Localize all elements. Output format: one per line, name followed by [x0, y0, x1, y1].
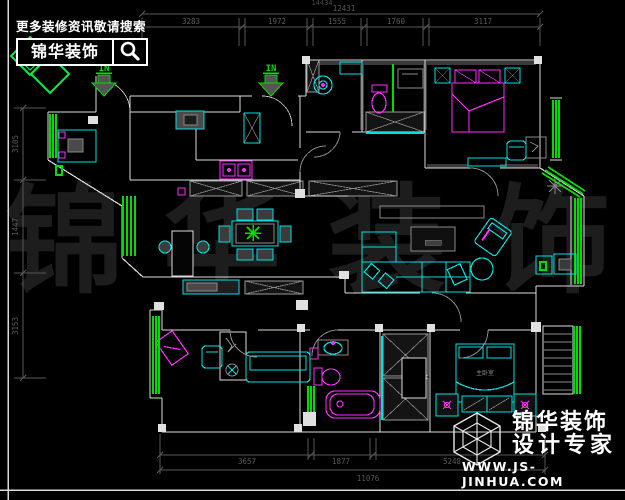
pillar: [375, 324, 383, 332]
corner-seat: [447, 264, 467, 285]
dim-label: 3283: [182, 17, 200, 26]
room-label: 主卧室: [476, 369, 494, 377]
shape-r: [59, 132, 65, 138]
shape-r: [68, 139, 83, 152]
brand-tagline: 更多装修资讯敬请搜索: [16, 16, 148, 35]
master-balcony: [543, 326, 573, 394]
dim-label: 3657: [238, 457, 256, 466]
toilet: [372, 93, 386, 113]
pillar: [88, 116, 98, 124]
shape-r: [59, 152, 65, 158]
desk-chair: [202, 346, 222, 368]
shape-c: [243, 169, 246, 172]
shape-r: [540, 262, 546, 270]
door-arc: [314, 132, 340, 157]
dim-label: 14434: [311, 0, 332, 7]
pillar: [339, 271, 349, 279]
dim-label: 3153: [11, 317, 20, 335]
dim-label: 1877: [332, 457, 350, 466]
dim-label: 3117: [474, 17, 492, 26]
door-arc: [470, 168, 498, 196]
pillar: [427, 324, 435, 332]
pillar: [296, 300, 308, 310]
cushion: [378, 273, 393, 288]
brand-subtitle: 设计专家: [512, 434, 616, 457]
door-arc: [230, 330, 257, 357]
dim-label: 3105: [11, 135, 20, 153]
vanity: [398, 69, 423, 88]
cushion: [364, 264, 379, 279]
magnifier-icon: [112, 40, 146, 64]
door-arc: [262, 96, 292, 126]
entry-arrow: [259, 83, 283, 96]
dim-label: 1760: [387, 17, 406, 26]
brand-box: 锦华装饰: [16, 38, 148, 66]
tv: [411, 227, 455, 251]
shape-r: [250, 356, 306, 370]
door-arc: [432, 293, 461, 322]
pillar: [302, 56, 310, 64]
dim-label: 1447: [11, 218, 20, 236]
chair: [237, 249, 253, 260]
shape-c: [322, 84, 325, 87]
toilet: [322, 369, 340, 385]
pillar: [531, 322, 541, 332]
counter: [172, 231, 193, 276]
entry-arrow: [265, 75, 277, 83]
shape-c: [228, 169, 231, 172]
stool: [197, 241, 209, 253]
shape-r: [402, 358, 426, 398]
shape-c: [332, 342, 335, 345]
shape-pl: [452, 94, 504, 111]
appliance: [536, 256, 552, 274]
top-left-logo: 更多装修资讯敬请搜索 锦华装饰: [16, 16, 148, 66]
shape-l: [540, 168, 584, 196]
pillar: [295, 189, 305, 198]
shape-r: [488, 223, 507, 239]
toilet-tank: [314, 368, 322, 385]
shape-l: [164, 340, 181, 357]
pillar: [158, 424, 166, 432]
brand-name: 锦华装饰: [18, 40, 112, 64]
dim-label: 1555: [328, 17, 346, 26]
toilet-tank: [372, 85, 387, 92]
shape-c: [337, 401, 343, 407]
pillar: [154, 302, 164, 310]
shape-r: [178, 188, 185, 195]
fixture: [310, 348, 318, 359]
shape-r: [425, 240, 441, 245]
study-cabinet: [220, 332, 246, 380]
dim-label: 12431: [333, 4, 356, 13]
shape-r: [187, 283, 217, 291]
chair: [219, 226, 230, 242]
shape-l: [479, 70, 500, 83]
pillar: [294, 424, 302, 432]
pillar: [303, 412, 316, 426]
pillar: [534, 56, 542, 64]
shape-r: [184, 115, 197, 125]
brand-name: 锦华装饰: [512, 411, 616, 434]
desk-chair: [507, 141, 526, 160]
blanket: [456, 382, 514, 390]
tv-wall: [380, 206, 484, 218]
dim-label: 11076: [357, 474, 380, 483]
side-table: [471, 258, 493, 280]
shape-l: [482, 229, 490, 240]
pillow: [487, 347, 511, 358]
chair: [257, 249, 273, 260]
entry-arrow: [98, 75, 110, 83]
brand-website: WWW.JS-JINHUA.COM: [462, 459, 625, 489]
stool: [159, 241, 171, 253]
shape-pl: [530, 142, 538, 152]
chair: [237, 209, 253, 220]
shape-l: [455, 70, 476, 83]
door-arc: [300, 146, 326, 172]
dim-label: 1972: [268, 17, 286, 26]
shape-l: [122, 258, 143, 277]
floorplan-page: 锦 华 装 饰 主卧室14434124313283197215551760311…: [0, 0, 625, 500]
shape-r: [559, 259, 571, 270]
chair: [280, 226, 291, 242]
chair: [257, 209, 273, 220]
pillar: [297, 324, 305, 332]
